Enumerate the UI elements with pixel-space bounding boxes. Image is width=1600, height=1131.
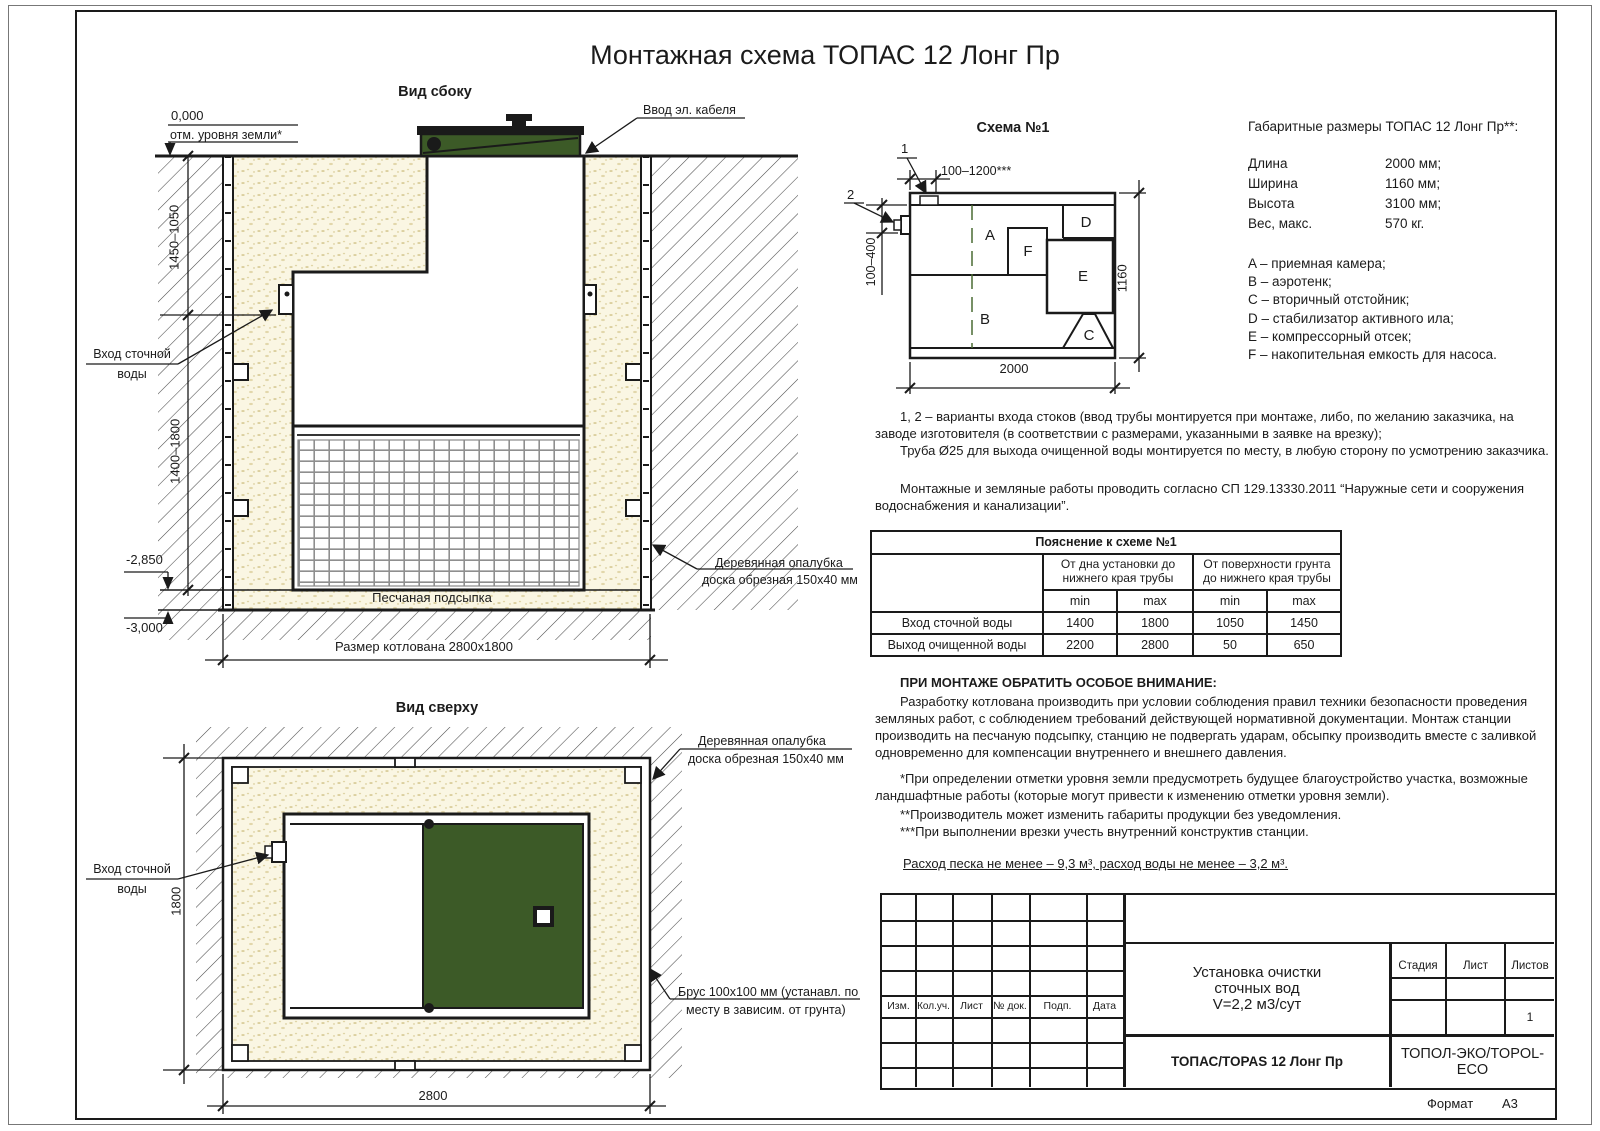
page-title: Монтажная схема ТОПАС 12 Лонг Пр xyxy=(500,40,1150,70)
exp-row-outlet-v4: 650 xyxy=(1267,634,1341,656)
spec-label-height: Высота xyxy=(1248,196,1294,211)
schema-compartment-e: E xyxy=(1073,269,1093,286)
stamp-sheets-value: 1 xyxy=(1506,999,1554,1034)
stamp-col-podp: Подп. xyxy=(1029,995,1086,1017)
exp-table-title: Пояснение к схеме №1 xyxy=(871,531,1341,554)
spec-value-weight: 570 кг. xyxy=(1385,216,1424,231)
spec-label-weight: Вес, макс. xyxy=(1248,216,1312,231)
schema-title: Схема №1 xyxy=(913,120,1113,136)
schema-dim-top: 100–1200*** xyxy=(941,164,1011,178)
stamp-col-list: Лист xyxy=(952,995,991,1017)
beam-label-1: Брус 100x100 мм (устанавл. по xyxy=(678,985,858,999)
schema-compartment-f: F xyxy=(1018,244,1038,261)
beam-label-2: месту в зависим. от грунта) xyxy=(686,1003,846,1017)
schema-compartment-c: C xyxy=(1079,328,1099,345)
schema-geometry xyxy=(844,158,1146,394)
stamp-model: ТОПАС/TOPAS 12 Лонг Пр xyxy=(1125,1036,1389,1087)
inlet-label-side-2: воды xyxy=(86,367,178,381)
format-value: А3 xyxy=(1502,1097,1518,1112)
pit-size-label: Размер котлована 2800x1800 xyxy=(324,640,524,655)
formwork-label-top-1: Деревянная опалубка xyxy=(698,734,826,748)
dim-1450-1050: 1450–1050 xyxy=(168,197,183,277)
spec-value-width: 1160 мм; xyxy=(1385,176,1440,191)
footnote-3: ***При выполнении врезки учесть внутренн… xyxy=(875,823,1557,840)
explanation-table: Пояснение к схеме №1 От дна установки до… xyxy=(870,530,1342,657)
note-inlet-variants: 1, 2 – варианты входа стоков (ввод трубы… xyxy=(875,408,1557,442)
stamp-col-ndok: № док. xyxy=(991,995,1029,1017)
exp-row-outlet-label: Выход очищенной воды xyxy=(871,634,1043,656)
schema-dim-left: 100–400 xyxy=(864,227,878,297)
legend-item-d: D – стабилизатор активного ила; xyxy=(1248,311,1454,326)
exp-min-1: min xyxy=(1043,590,1117,612)
legend-item-c: C – вторичный отстойник; xyxy=(1248,292,1409,307)
dim-1800: 1800 xyxy=(170,861,185,941)
legend-item-a: A – приемная камера; xyxy=(1248,256,1386,271)
top-view-geometry xyxy=(86,727,860,1114)
legend-item-e: E – компрессорный отсек; xyxy=(1248,329,1411,344)
footnote-1: *При определении отметки уровня земли пр… xyxy=(875,770,1557,804)
inlet-label-side-1: Вход сточной xyxy=(86,347,178,361)
level-2850-label: -2,850 xyxy=(126,553,163,568)
exp-row-inlet-label: Вход сточной воды xyxy=(871,612,1043,634)
stamp-col-koluch: Кол.уч. xyxy=(915,995,952,1017)
drawing-sheet: Монтажная схема ТОПАС 12 Лонг Пр Вид сбо… xyxy=(0,0,1600,1131)
exp-row-outlet-v2: 2800 xyxy=(1117,634,1193,656)
title-block: Изм. Кол.уч. Лист № док. Подп. Дата Уста… xyxy=(880,893,1557,1090)
exp-row-inlet-v4: 1450 xyxy=(1267,612,1341,634)
attention-body: Разработку котлована производить при усл… xyxy=(875,693,1557,761)
spec-value-length: 2000 мм; xyxy=(1385,156,1441,171)
specs-heading: Габаритные размеры ТОПАС 12 Лонг Пр**: xyxy=(1248,119,1518,134)
lid-top-view xyxy=(423,824,583,1008)
schema-marker-2: 2 xyxy=(847,188,854,203)
exp-max-1: max xyxy=(1117,590,1193,612)
exp-table-corner xyxy=(871,554,1043,612)
inlet-label-top-1: Вход сточной xyxy=(86,862,178,876)
zero-mark-label: 0,000 xyxy=(171,109,204,124)
dim-1400-1800: 1400–1800 xyxy=(169,411,184,491)
consumption-note: Расход песка не менее – 9,3 м³, расход в… xyxy=(903,857,1288,872)
exp-row-outlet-v3: 50 xyxy=(1193,634,1267,656)
spec-value-height: 3100 мм; xyxy=(1385,196,1441,211)
level-3000-label: -3,000 xyxy=(126,621,163,636)
cable-entry-label: Ввод эл. кабеля xyxy=(643,103,736,117)
side-view-title: Вид сбоку xyxy=(355,84,515,100)
schema-compartment-b: B xyxy=(975,312,995,329)
stamp-col-izm: Изм. xyxy=(882,995,915,1017)
sand-bed-label: Песчаная подсыпка xyxy=(352,591,512,606)
schema-dim-right: 1160 xyxy=(1116,238,1131,318)
exp-row-inlet-v1: 1400 xyxy=(1043,612,1117,634)
exp-col-group-2: От поверхности грунта до нижнего края тр… xyxy=(1193,554,1341,590)
exp-max-2: max xyxy=(1267,590,1341,612)
ground-level-label: отм. уровня земли* xyxy=(170,128,282,142)
top-view-title: Вид сверху xyxy=(357,700,517,716)
exp-row-inlet-v2: 1800 xyxy=(1117,612,1193,634)
dim-2800: 2800 xyxy=(383,1089,483,1104)
schema-compartment-d: D xyxy=(1076,215,1096,232)
stamp-sheets-label: Листов xyxy=(1506,955,1554,977)
stamp-stage-label: Стадия xyxy=(1391,955,1445,977)
stamp-project-line-1: Установка очистки xyxy=(1193,965,1322,981)
exp-row-outlet-v1: 2200 xyxy=(1043,634,1117,656)
spec-label-width: Ширина xyxy=(1248,176,1298,191)
note-outlet-pipe: Труба Ø25 для выхода очищенной воды монт… xyxy=(875,442,1557,459)
formwork-label-side-1: Деревянная опалубка xyxy=(715,556,843,570)
stamp-project-line-2: сточных вод xyxy=(1214,981,1299,997)
inlet-label-top-2: воды xyxy=(86,882,178,896)
spec-label-length: Длина xyxy=(1248,156,1288,171)
stamp-project-line-3: V=2,2 м3/сут xyxy=(1213,997,1301,1013)
stamp-col-data: Дата xyxy=(1086,995,1123,1017)
attention-heading: ПРИ МОНТАЖЕ ОБРАТИТЬ ОСОБОЕ ВНИМАНИЕ: xyxy=(900,676,1217,691)
stamp-sheet-label: Лист xyxy=(1447,955,1504,977)
formwork-label-side-2: доска обрезная 150x40 мм xyxy=(702,573,858,587)
schema-marker-1: 1 xyxy=(901,142,908,157)
note-sp-standard: Монтажные и земляные работы проводить со… xyxy=(875,480,1557,514)
stamp-company: ТОПОЛ-ЭКО/TOPOL-ECO xyxy=(1391,1036,1554,1087)
exp-col-group-1: От дна установки до нижнего края трубы xyxy=(1043,554,1193,590)
legend-item-f: F – накопительная емкость для насоса. xyxy=(1248,347,1497,362)
exp-min-2: min xyxy=(1193,590,1267,612)
schema-compartment-a: A xyxy=(980,228,1000,245)
footnote-2: **Производитель может изменить габариты … xyxy=(875,806,1557,823)
format-label: Формат xyxy=(1427,1097,1473,1112)
schema-dim-bottom: 2000 xyxy=(974,362,1054,377)
stamp-project-name: Установка очистки сточных вод V=2,2 м3/с… xyxy=(1125,944,1389,1034)
formwork-label-top-2: доска обрезная 150x40 мм xyxy=(688,752,844,766)
legend-item-b: B – аэротенк; xyxy=(1248,274,1332,289)
exp-row-inlet-v3: 1050 xyxy=(1193,612,1267,634)
